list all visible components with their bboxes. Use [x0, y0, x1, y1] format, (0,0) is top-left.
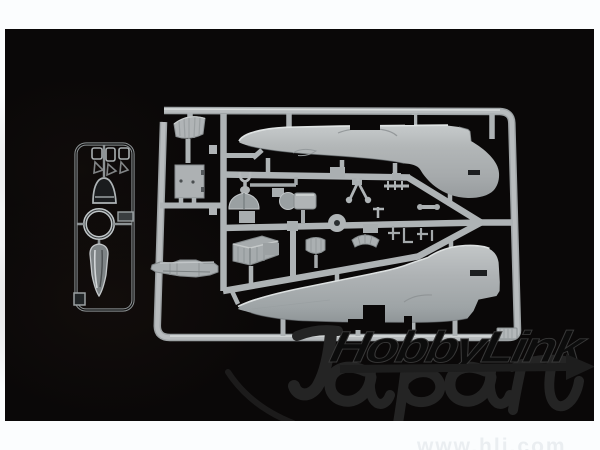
- svg-text:www.hlj.com: www.hlj.com: [416, 435, 567, 450]
